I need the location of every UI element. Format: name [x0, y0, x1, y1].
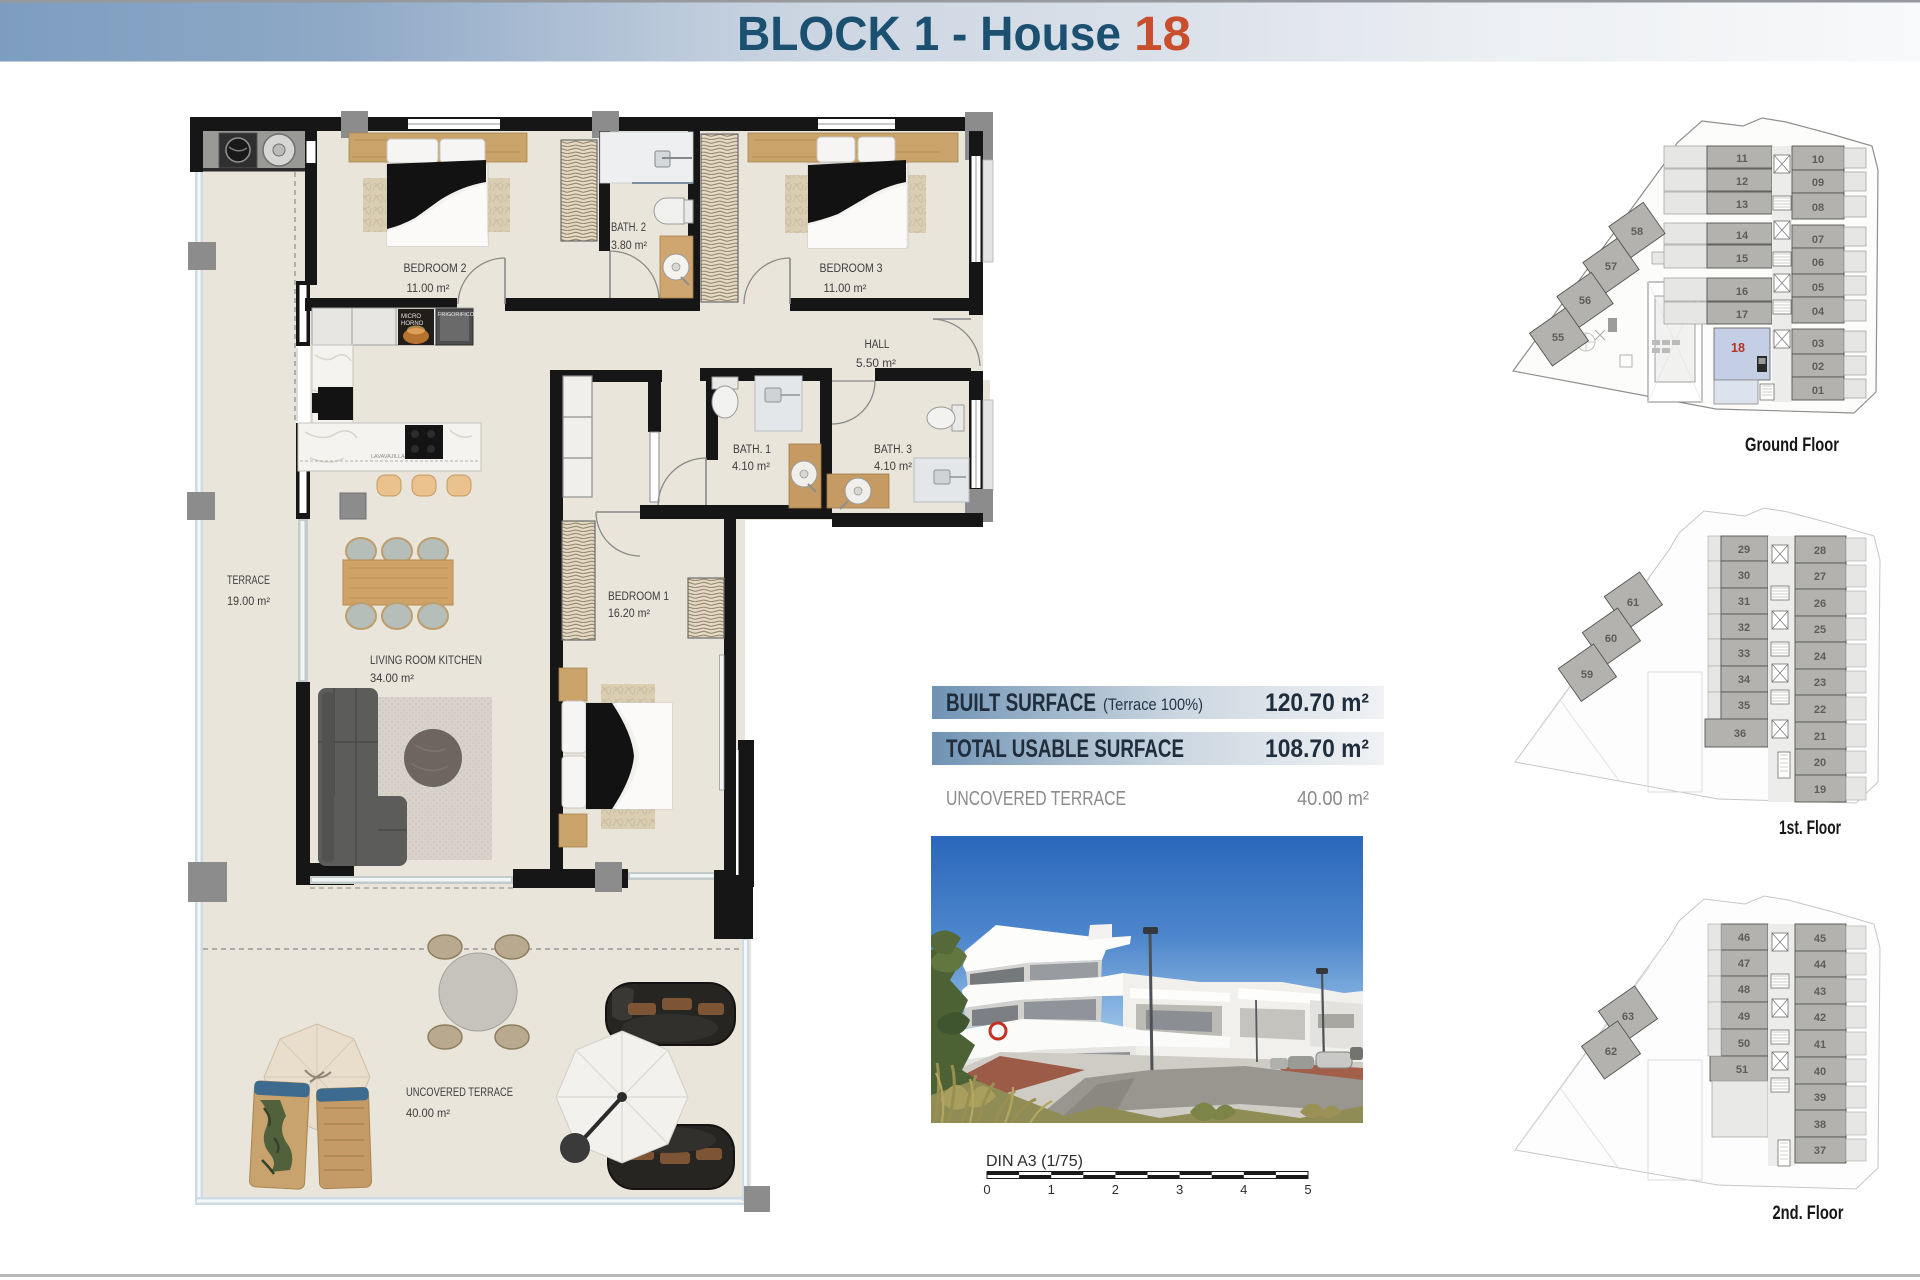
svg-text:40.00 m²: 40.00 m²	[1297, 788, 1369, 810]
svg-text:BEDROOM 3: BEDROOM 3	[820, 263, 883, 275]
svg-text:35: 35	[1738, 700, 1750, 712]
svg-text:18: 18	[1134, 8, 1191, 61]
svg-text:108.70 m²: 108.70 m²	[1265, 735, 1369, 763]
svg-text:60: 60	[1605, 633, 1617, 645]
svg-text:27: 27	[1814, 571, 1826, 583]
svg-text:36: 36	[1734, 728, 1746, 740]
svg-text:BATH. 1: BATH. 1	[733, 444, 771, 456]
svg-text:1: 1	[1048, 1182, 1055, 1197]
svg-text:BLOCK 1 - House: BLOCK 1 - House	[737, 8, 1121, 61]
svg-text:4.10 m²: 4.10 m²	[732, 461, 770, 473]
svg-text:16.20 m²: 16.20 m²	[608, 608, 650, 620]
svg-text:42: 42	[1814, 1012, 1826, 1024]
svg-text:41: 41	[1814, 1039, 1826, 1051]
svg-text:03: 03	[1812, 338, 1824, 350]
svg-text:FRIGORIFICO: FRIGORIFICO	[438, 312, 475, 318]
svg-text:2: 2	[1112, 1182, 1119, 1197]
svg-text:63: 63	[1622, 1011, 1634, 1023]
svg-text:38: 38	[1814, 1119, 1826, 1131]
svg-text:5.50 m²: 5.50 m²	[856, 358, 896, 370]
svg-text:33: 33	[1738, 648, 1750, 660]
svg-text:61: 61	[1627, 597, 1639, 609]
svg-text:19.00 m²: 19.00 m²	[227, 596, 270, 608]
svg-text:BEDROOM 2: BEDROOM 2	[404, 263, 467, 275]
svg-text:24: 24	[1814, 651, 1827, 663]
svg-text:14: 14	[1736, 230, 1749, 242]
svg-text:(Terrace 100%): (Terrace 100%)	[1103, 695, 1203, 714]
svg-text:23: 23	[1814, 677, 1826, 689]
svg-text:18: 18	[1731, 341, 1745, 355]
svg-text:19: 19	[1814, 784, 1826, 796]
svg-text:4: 4	[1240, 1182, 1247, 1197]
svg-text:0: 0	[983, 1182, 990, 1197]
svg-text:06: 06	[1812, 257, 1824, 269]
svg-text:1st. Floor: 1st. Floor	[1779, 818, 1841, 839]
svg-text:34.00 m²: 34.00 m²	[370, 673, 414, 685]
svg-text:30: 30	[1738, 570, 1750, 582]
svg-text:28: 28	[1814, 545, 1826, 557]
svg-text:BUILT SURFACE: BUILT SURFACE	[946, 689, 1096, 717]
svg-text:2nd. Floor: 2nd. Floor	[1773, 1203, 1844, 1224]
svg-text:09: 09	[1812, 177, 1824, 189]
svg-text:120.70 m²: 120.70 m²	[1265, 689, 1369, 717]
svg-text:31: 31	[1738, 596, 1750, 608]
svg-text:4.10 m²: 4.10 m²	[874, 461, 912, 473]
svg-text:TERRACE: TERRACE	[227, 575, 270, 587]
svg-text:17: 17	[1736, 309, 1748, 321]
svg-text:34: 34	[1738, 674, 1751, 686]
svg-text:26: 26	[1814, 598, 1826, 610]
svg-text:56: 56	[1579, 295, 1591, 307]
svg-text:50: 50	[1738, 1038, 1750, 1050]
svg-text:11: 11	[1736, 153, 1748, 165]
svg-text:48: 48	[1738, 984, 1750, 996]
svg-text:45: 45	[1814, 933, 1826, 945]
svg-text:32: 32	[1738, 622, 1750, 634]
svg-text:47: 47	[1738, 958, 1750, 970]
svg-text:UNCOVERED TERRACE: UNCOVERED TERRACE	[406, 1087, 513, 1099]
svg-text:BATH. 3: BATH. 3	[874, 444, 912, 456]
svg-text:07: 07	[1812, 234, 1824, 246]
svg-text:02: 02	[1812, 361, 1824, 373]
svg-text:55: 55	[1552, 332, 1564, 344]
svg-text:21: 21	[1814, 731, 1826, 743]
svg-text:DIN A3 (1/75): DIN A3 (1/75)	[986, 1153, 1083, 1170]
svg-text:43: 43	[1814, 986, 1826, 998]
svg-text:04: 04	[1812, 306, 1825, 318]
svg-text:3.80 m²: 3.80 m²	[611, 240, 647, 252]
svg-text:57: 57	[1605, 261, 1617, 273]
svg-text:Ground Floor: Ground Floor	[1745, 435, 1839, 456]
svg-text:MICRO: MICRO	[401, 314, 421, 320]
svg-text:59: 59	[1581, 669, 1593, 681]
svg-text:TOTAL USABLE SURFACE: TOTAL USABLE SURFACE	[946, 735, 1184, 763]
svg-text:51: 51	[1736, 1064, 1748, 1076]
svg-text:13: 13	[1736, 199, 1748, 211]
svg-text:08: 08	[1812, 202, 1824, 214]
svg-text:49: 49	[1738, 1011, 1750, 1023]
svg-text:58: 58	[1631, 226, 1643, 238]
svg-text:37: 37	[1814, 1145, 1826, 1157]
svg-text:01: 01	[1812, 385, 1824, 397]
svg-text:HORNO: HORNO	[401, 321, 424, 327]
svg-text:39: 39	[1814, 1092, 1826, 1104]
svg-text:29: 29	[1738, 544, 1750, 556]
svg-text:10: 10	[1812, 154, 1824, 166]
svg-text:40: 40	[1814, 1066, 1826, 1078]
svg-text:40.00 m²: 40.00 m²	[406, 1108, 450, 1120]
svg-text:15: 15	[1736, 253, 1748, 265]
svg-text:16: 16	[1736, 286, 1748, 298]
svg-text:05: 05	[1812, 282, 1824, 294]
svg-text:62: 62	[1605, 1046, 1617, 1058]
svg-text:BEDROOM 1: BEDROOM 1	[608, 591, 669, 603]
svg-text:25: 25	[1814, 624, 1826, 636]
svg-text:LIVING ROOM KITCHEN: LIVING ROOM KITCHEN	[370, 655, 482, 667]
svg-text:22: 22	[1814, 704, 1826, 716]
svg-text:11.00 m²: 11.00 m²	[824, 283, 867, 295]
svg-text:BATH. 2: BATH. 2	[611, 222, 646, 234]
svg-text:3: 3	[1176, 1182, 1183, 1197]
svg-text:20: 20	[1814, 757, 1826, 769]
svg-text:11.00 m²: 11.00 m²	[407, 283, 450, 295]
svg-text:12: 12	[1736, 176, 1748, 188]
svg-text:HALL: HALL	[865, 339, 891, 351]
svg-text:5: 5	[1304, 1182, 1311, 1197]
svg-text:46: 46	[1738, 932, 1750, 944]
svg-text:44: 44	[1814, 959, 1827, 971]
svg-text:LAVAVAJILLAS: LAVAVAJILLAS	[371, 454, 409, 460]
svg-text:UNCOVERED TERRACE: UNCOVERED TERRACE	[946, 788, 1126, 810]
